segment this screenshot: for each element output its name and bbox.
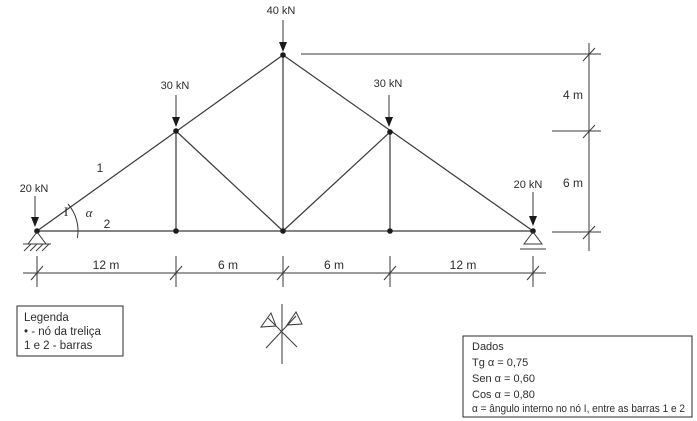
truss-diagram: 40 kN 30 kN 30 kN 20 kN 20 kN 1 2 I α 12… (0, 0, 697, 421)
legend-bars-item: 1 e 2 - barras (24, 340, 93, 352)
legend-node-item: • - nó da treliça (24, 326, 101, 338)
truss-problem-figure: 40 kN 30 kN 30 kN 20 kN 20 kN 1 2 I α 12… (0, 0, 697, 421)
arrowhead-icon (529, 216, 537, 226)
dim-label-span-1: 12 m (93, 258, 120, 272)
bar-1-label: 1 (97, 161, 104, 175)
dim-label-span-2: 6 m (218, 258, 238, 272)
arrowhead-icon (279, 42, 287, 52)
pin-support-icon (23, 232, 51, 251)
load-arrow-left-mid (172, 95, 180, 127)
truss-members (37, 55, 533, 231)
dim-label-right-top: 4 m (563, 88, 583, 102)
legend-box: Legenda • - nó da treliça 1 e 2 - barras (17, 306, 123, 356)
dados-cos-value: Cos α = 0,80 (472, 389, 535, 401)
load-arrow-apex (279, 20, 287, 52)
node-dot-apex (280, 52, 286, 58)
dados-alpha-note: α = ângulo interno no nó I, entre as bar… (472, 403, 685, 415)
member-top-chord-right (283, 55, 533, 231)
bar-2-label: 2 (104, 217, 111, 231)
load-arrow-right-support (529, 192, 537, 226)
cut-mark-icon (261, 304, 302, 364)
node-dot-left-support (34, 228, 40, 234)
bottom-dimension-line: 12 m 6 m 6 m 12 m (23, 256, 546, 287)
dim-label-span-4: 12 m (450, 258, 477, 272)
node-dot-bottom-2 (387, 228, 393, 234)
member-diagonal-right (283, 132, 390, 231)
dados-tg-value: Tg α = 0,75 (472, 357, 528, 369)
load-arrow-right-mid (385, 95, 393, 127)
angle-arc (68, 204, 78, 238)
member-diagonal-left (176, 131, 283, 231)
node-dot-right-support (530, 228, 536, 234)
load-label-apex: 40 kN (267, 5, 296, 17)
arrowhead-icon (31, 217, 39, 227)
arrowhead-icon (172, 117, 180, 127)
load-arrow-left-support (31, 196, 39, 227)
load-label-right-support: 20 kN (514, 179, 543, 191)
load-label-right-mid: 30 kN (374, 78, 403, 90)
dados-sen-value: Sen α = 0,60 (472, 373, 535, 385)
node-dot-left-mid (173, 128, 179, 134)
load-label-left-mid: 30 kN (161, 80, 190, 92)
legend-title: Legenda (24, 312, 69, 324)
roller-support-icon (520, 232, 546, 249)
node-dot-right-mid (387, 129, 393, 135)
node-i-label: I (64, 204, 68, 219)
right-dimension-line: 4 m 6 m (301, 43, 601, 251)
node-dot-bottom-center (280, 228, 286, 234)
dados-title: Dados (472, 341, 504, 353)
dados-box: Dados Tg α = 0,75 Sen α = 0,60 Cos α = 0… (463, 336, 692, 417)
dim-label-right-bottom: 6 m (563, 176, 583, 190)
node-dot-bottom-1 (173, 228, 179, 234)
angle-alpha-label: α (86, 205, 94, 220)
truss-nodes (34, 52, 536, 234)
load-label-left-support: 20 kN (20, 183, 49, 195)
arrowhead-icon (385, 117, 393, 127)
dim-label-span-3: 6 m (324, 258, 344, 272)
